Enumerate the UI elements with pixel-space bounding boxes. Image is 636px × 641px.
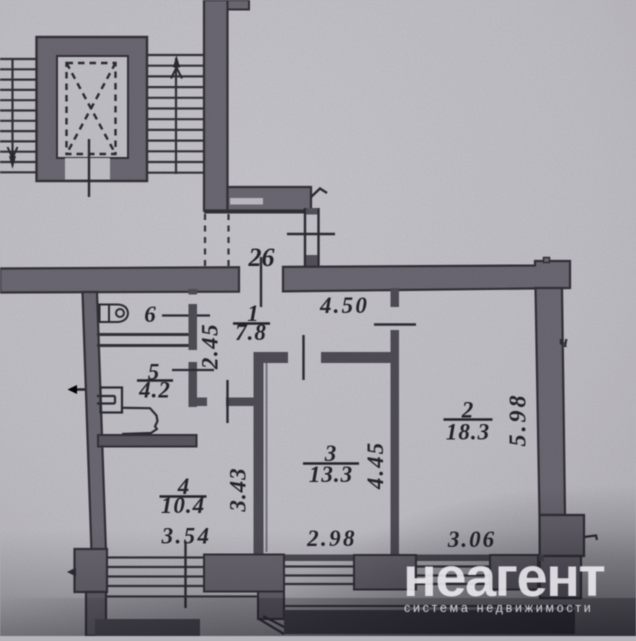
svg-text:неагент: неагент — [403, 545, 604, 608]
svg-text:система недвижимости: система недвижимости — [404, 601, 593, 615]
